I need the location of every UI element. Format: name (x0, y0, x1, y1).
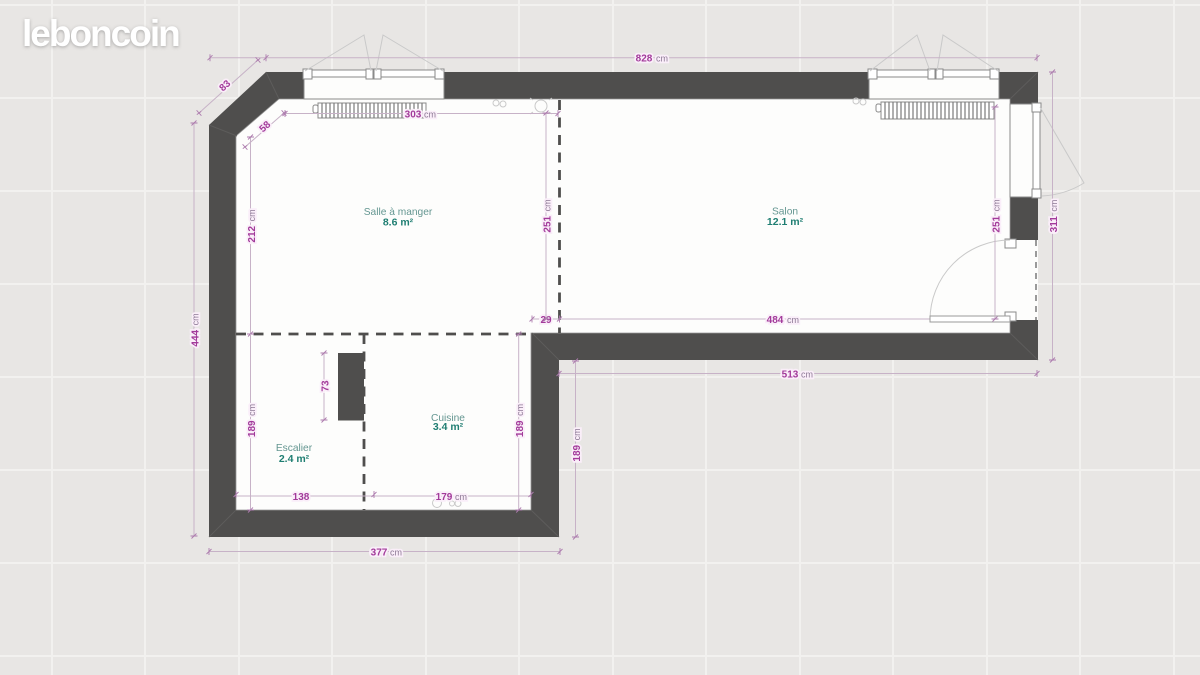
svg-text:cm: cm (787, 315, 799, 325)
svg-text:513: 513 (782, 369, 799, 380)
svg-text:251 cm: 251 cm (542, 199, 553, 232)
svg-text:828: 828 (636, 54, 653, 65)
svg-text:3.4 m²: 3.4 m² (433, 421, 464, 433)
svg-text:cm: cm (390, 547, 402, 557)
svg-text:8.6 m²: 8.6 m² (383, 217, 414, 229)
svg-text:12.1 m²: 12.1 m² (767, 216, 804, 228)
svg-text:138: 138 (293, 492, 310, 503)
svg-text:212 cm: 212 cm (247, 209, 258, 242)
svg-text:cm: cm (801, 369, 813, 379)
svg-text:251 cm: 251 cm (991, 199, 1002, 232)
svg-text:73: 73 (320, 380, 331, 392)
svg-text:179: 179 (436, 492, 453, 503)
svg-text:303: 303 (405, 109, 422, 120)
svg-text:2.4 m²: 2.4 m² (279, 453, 310, 465)
svg-text:189 cm: 189 cm (572, 428, 583, 461)
svg-text:444 cm: 444 cm (190, 313, 201, 346)
svg-text:cm: cm (656, 54, 668, 64)
svg-text:189 cm: 189 cm (247, 404, 258, 437)
svg-text:189 cm: 189 cm (515, 404, 526, 437)
svg-text:cm: cm (424, 109, 436, 119)
svg-text:377: 377 (371, 547, 388, 558)
svg-text:cm: cm (455, 492, 467, 502)
svg-text:484: 484 (767, 315, 784, 326)
